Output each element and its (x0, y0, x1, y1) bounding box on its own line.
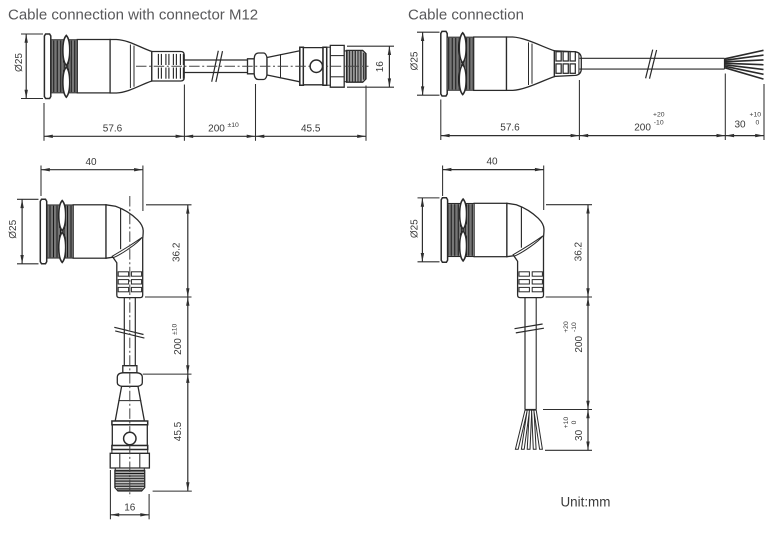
svg-text:Ø25: Ø25 (14, 53, 25, 72)
svg-text:Ø25: Ø25 (8, 219, 19, 238)
svg-text:0: 0 (571, 420, 578, 424)
svg-text:Cable connection: Cable connection (408, 7, 524, 24)
svg-text:Ø25: Ø25 (409, 219, 420, 238)
svg-text:Unit:mm: Unit:mm (561, 494, 611, 509)
svg-text:Ø25: Ø25 (410, 51, 421, 70)
svg-text:-10: -10 (571, 322, 578, 332)
svg-text:200: 200 (173, 338, 184, 355)
svg-text:+10: +10 (563, 417, 570, 429)
svg-text:40: 40 (85, 157, 97, 168)
svg-text:Cable connection with connecto: Cable connection with connector M12 (8, 7, 258, 24)
svg-text:200: 200 (208, 124, 225, 135)
svg-text:36.2: 36.2 (172, 242, 183, 262)
svg-text:±10: ±10 (228, 122, 240, 129)
svg-text:16: 16 (124, 502, 136, 513)
svg-text:45.5: 45.5 (173, 421, 184, 441)
svg-text:30: 30 (574, 429, 585, 441)
svg-text:+20: +20 (563, 321, 570, 333)
svg-text:+10: +10 (750, 112, 762, 119)
svg-text:57.6: 57.6 (500, 123, 520, 134)
svg-text:30: 30 (734, 120, 746, 131)
svg-text:40: 40 (486, 157, 498, 168)
svg-text:0: 0 (756, 119, 760, 126)
svg-text:200: 200 (634, 123, 651, 134)
svg-text:45.5: 45.5 (301, 124, 321, 135)
svg-text:±10: ±10 (171, 323, 178, 335)
svg-text:-10: -10 (654, 119, 664, 126)
svg-text:36.2: 36.2 (574, 241, 585, 261)
svg-text:+20: +20 (653, 112, 665, 119)
svg-text:57.6: 57.6 (103, 124, 123, 135)
svg-text:200: 200 (574, 336, 585, 353)
svg-text:16: 16 (375, 61, 386, 73)
